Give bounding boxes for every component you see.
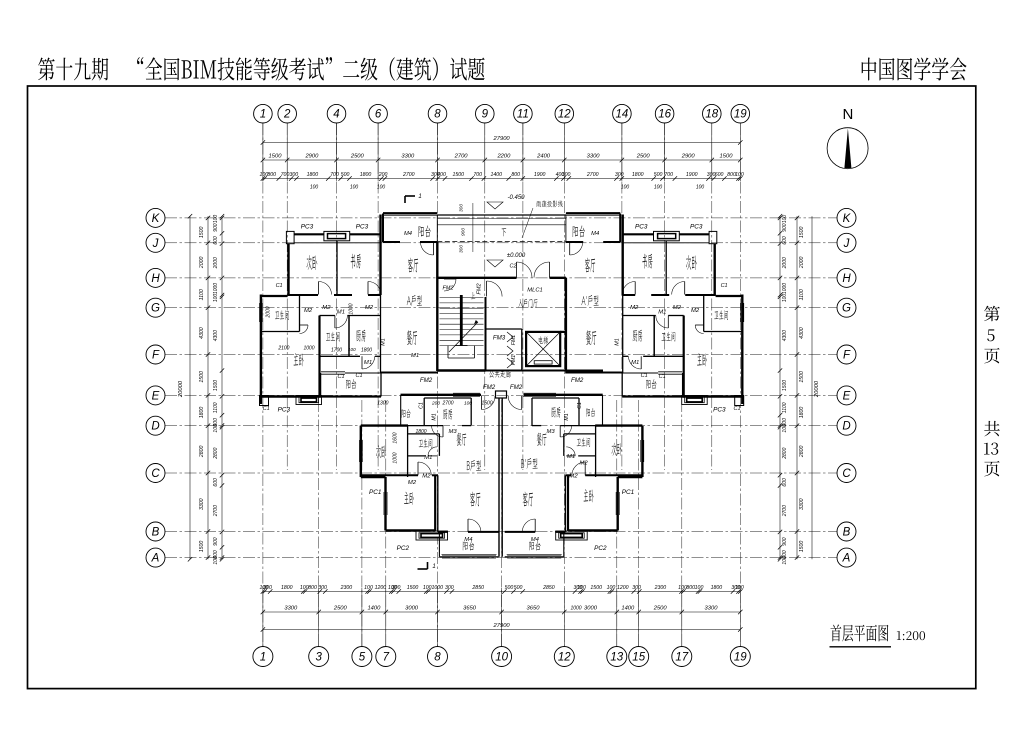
svg-text:2800: 2800 <box>213 447 219 459</box>
svg-text:M2: M2 <box>691 308 700 314</box>
svg-text:1800: 1800 <box>799 407 805 419</box>
svg-text:1400: 1400 <box>367 606 381 612</box>
svg-text:FM2: FM2 <box>483 384 496 391</box>
svg-text:800: 800 <box>308 585 317 591</box>
svg-text:C1: C1 <box>659 374 666 380</box>
svg-text:M2: M2 <box>422 474 431 480</box>
svg-text:500: 500 <box>654 172 663 178</box>
svg-text:PC1: PC1 <box>369 489 382 496</box>
svg-text:M1: M1 <box>658 310 666 316</box>
svg-text:300: 300 <box>289 172 298 178</box>
svg-text:100: 100 <box>607 585 616 591</box>
svg-text:300: 300 <box>445 585 454 591</box>
svg-text:J: J <box>843 238 850 250</box>
svg-text:1500: 1500 <box>720 154 734 160</box>
svg-text:PC3: PC3 <box>301 224 314 231</box>
svg-text:3000: 3000 <box>405 606 419 612</box>
svg-text:11: 11 <box>517 109 529 121</box>
svg-text:PC3: PC3 <box>356 224 369 231</box>
svg-text:FM1: FM1 <box>511 355 517 365</box>
svg-text:1900: 1900 <box>534 172 546 178</box>
svg-text:900: 900 <box>782 223 788 232</box>
svg-text:100: 100 <box>350 185 359 191</box>
svg-text:100: 100 <box>213 294 219 303</box>
svg-text:1200: 1200 <box>375 585 387 591</box>
svg-text:1000: 1000 <box>349 303 355 314</box>
svg-text:K: K <box>843 213 852 225</box>
svg-text:1100: 1100 <box>213 402 219 413</box>
svg-text:M2: M2 <box>673 305 682 311</box>
svg-text:C: C <box>842 468 851 480</box>
svg-text:200: 200 <box>431 401 440 407</box>
svg-text:100: 100 <box>654 185 663 191</box>
svg-text:800: 800 <box>511 172 520 178</box>
svg-text:2500: 2500 <box>653 606 668 612</box>
svg-text:5: 5 <box>359 652 366 664</box>
svg-text:M2: M2 <box>408 480 417 486</box>
svg-text:300: 300 <box>459 245 465 253</box>
svg-text:2200: 2200 <box>496 154 511 160</box>
svg-text:3300: 3300 <box>799 498 805 510</box>
svg-text:2800: 2800 <box>799 446 805 459</box>
svg-text:M1: M1 <box>567 454 575 460</box>
svg-text:100: 100 <box>782 424 788 433</box>
svg-text:13: 13 <box>610 652 623 664</box>
svg-text:1800: 1800 <box>361 348 372 354</box>
svg-text:±0.000: ±0.000 <box>507 253 526 259</box>
svg-text:G: G <box>151 303 160 315</box>
svg-text:FM2: FM2 <box>443 286 454 292</box>
svg-text:1600: 1600 <box>393 432 399 443</box>
svg-text:2000: 2000 <box>266 306 272 318</box>
svg-text:M4: M4 <box>531 537 540 543</box>
svg-text:1200: 1200 <box>617 585 629 591</box>
svg-text:2700: 2700 <box>213 505 219 517</box>
svg-text:9: 9 <box>482 109 489 121</box>
svg-text:1000: 1000 <box>213 283 219 294</box>
svg-text:2700: 2700 <box>402 172 415 178</box>
svg-text:FM2: FM2 <box>571 377 584 384</box>
svg-text:2850: 2850 <box>471 585 484 591</box>
svg-text:1500: 1500 <box>799 541 805 553</box>
svg-text:1: 1 <box>432 564 435 570</box>
svg-text:1000: 1000 <box>782 283 788 294</box>
svg-text:1500: 1500 <box>199 541 205 553</box>
svg-text:M1: M1 <box>564 413 570 420</box>
svg-text:C1: C1 <box>355 373 362 379</box>
svg-text:700: 700 <box>664 172 673 178</box>
svg-text:M2: M2 <box>304 308 313 314</box>
svg-text:M2: M2 <box>630 305 639 311</box>
svg-text:C1: C1 <box>337 374 344 380</box>
svg-text:PC3: PC3 <box>635 224 648 231</box>
svg-text:600: 600 <box>213 236 219 245</box>
svg-text:1100: 1100 <box>782 402 788 413</box>
svg-text:2700: 2700 <box>454 154 469 160</box>
svg-text:1000: 1000 <box>393 452 399 463</box>
svg-text:MLC1: MLC1 <box>527 288 542 294</box>
svg-text:3000: 3000 <box>584 606 598 612</box>
svg-text:2500: 2500 <box>350 154 365 160</box>
svg-text:12: 12 <box>558 652 571 664</box>
svg-text:7: 7 <box>383 652 390 664</box>
svg-text:1500: 1500 <box>199 371 205 383</box>
svg-text:600: 600 <box>213 478 219 487</box>
svg-text:M1: M1 <box>411 353 419 359</box>
svg-text:100: 100 <box>696 185 705 191</box>
svg-text:FM2: FM2 <box>510 384 523 391</box>
svg-text:700: 700 <box>330 172 339 178</box>
svg-text:900: 900 <box>213 537 219 546</box>
svg-text:PC2: PC2 <box>397 545 410 552</box>
svg-text:300: 300 <box>562 172 571 178</box>
svg-text:1500: 1500 <box>199 227 205 239</box>
svg-text:2300: 2300 <box>340 585 353 591</box>
svg-text:2100: 2100 <box>277 346 289 352</box>
svg-text:100: 100 <box>364 585 373 591</box>
svg-text:H: H <box>151 273 160 285</box>
svg-text:2850: 2850 <box>542 585 555 591</box>
svg-text:M2: M2 <box>580 461 589 467</box>
svg-text:2000: 2000 <box>799 257 805 270</box>
svg-text:10: 10 <box>495 652 508 664</box>
svg-text:M4: M4 <box>591 231 599 237</box>
svg-text:M4: M4 <box>464 537 473 543</box>
svg-text:C1: C1 <box>276 283 283 289</box>
svg-text:300: 300 <box>632 585 641 591</box>
svg-text:1: 1 <box>418 194 421 200</box>
svg-text:C1: C1 <box>263 406 270 412</box>
svg-text:100: 100 <box>735 172 744 178</box>
svg-text:100: 100 <box>213 215 219 224</box>
svg-text:3300: 3300 <box>401 154 415 160</box>
svg-text:1700: 1700 <box>331 348 342 354</box>
svg-text:PC3: PC3 <box>713 407 726 414</box>
svg-text:3300: 3300 <box>284 606 298 612</box>
svg-text:2900: 2900 <box>304 154 319 160</box>
svg-text:900: 900 <box>213 223 219 232</box>
svg-text:3: 3 <box>315 652 322 664</box>
svg-text:800: 800 <box>267 172 276 178</box>
svg-text:H: H <box>842 273 851 285</box>
svg-text:100: 100 <box>695 585 704 591</box>
svg-text:C1: C1 <box>577 402 583 409</box>
svg-text:700: 700 <box>473 172 482 178</box>
svg-text:100: 100 <box>621 185 630 191</box>
svg-text:E: E <box>152 390 160 402</box>
svg-text:M1: M1 <box>615 338 621 346</box>
svg-text:FM2: FM2 <box>420 377 433 384</box>
svg-text:4: 4 <box>333 109 339 121</box>
svg-text:M1: M1 <box>337 310 345 316</box>
svg-text:20000: 20000 <box>178 380 184 398</box>
svg-text:1900: 1900 <box>686 172 698 178</box>
svg-text:1800: 1800 <box>307 172 319 178</box>
svg-text:C1: C1 <box>641 373 648 379</box>
svg-text:M1: M1 <box>381 338 387 346</box>
svg-text:100: 100 <box>735 585 744 591</box>
svg-text:1800: 1800 <box>199 407 205 419</box>
svg-text:1500: 1500 <box>269 154 283 160</box>
svg-text:700: 700 <box>281 172 290 178</box>
svg-text:FM2: FM2 <box>476 284 482 295</box>
svg-text:2300: 2300 <box>654 585 667 591</box>
svg-text:C1: C1 <box>733 406 740 412</box>
svg-text:27900: 27900 <box>493 136 511 142</box>
svg-text:100: 100 <box>213 424 219 433</box>
svg-text:M2: M2 <box>322 305 331 311</box>
svg-text:2700: 2700 <box>586 172 599 178</box>
svg-text:-0.450: -0.450 <box>507 195 525 201</box>
svg-text:100: 100 <box>782 556 788 565</box>
svg-text:M2: M2 <box>365 305 374 311</box>
svg-text:2700: 2700 <box>441 401 453 407</box>
svg-text:D: D <box>151 421 159 433</box>
svg-text:PC3: PC3 <box>690 224 703 231</box>
svg-text:100: 100 <box>377 185 386 191</box>
svg-text:D: D <box>842 421 850 433</box>
svg-text:900: 900 <box>782 537 788 546</box>
svg-text:1500: 1500 <box>590 585 602 591</box>
svg-text:19: 19 <box>734 109 747 121</box>
svg-text:100: 100 <box>782 294 788 303</box>
svg-text:8: 8 <box>434 109 441 121</box>
svg-text:1000: 1000 <box>570 606 581 612</box>
svg-text:900: 900 <box>461 228 467 236</box>
svg-text:600: 600 <box>782 478 788 487</box>
svg-text:PC2: PC2 <box>594 545 607 552</box>
svg-text:500: 500 <box>505 585 514 591</box>
svg-text:B: B <box>152 527 160 539</box>
svg-text:3300: 3300 <box>705 606 719 612</box>
svg-text:1500: 1500 <box>407 585 419 591</box>
svg-text:1300: 1300 <box>377 401 388 407</box>
svg-text:K: K <box>152 213 161 225</box>
svg-text:M3: M3 <box>547 429 556 435</box>
svg-text:16: 16 <box>658 109 671 121</box>
svg-text:300: 300 <box>615 172 624 178</box>
svg-text:2700: 2700 <box>782 505 788 517</box>
svg-text:F: F <box>843 350 851 362</box>
svg-text:1100: 1100 <box>199 289 205 300</box>
svg-text:FM3: FM3 <box>493 335 506 342</box>
svg-text:B: B <box>843 527 851 539</box>
svg-text:C1: C1 <box>721 283 728 289</box>
svg-text:2800: 2800 <box>782 447 788 459</box>
svg-text:8: 8 <box>434 652 441 664</box>
svg-text:14: 14 <box>616 109 629 121</box>
svg-text:2800: 2800 <box>199 446 205 459</box>
svg-text:500: 500 <box>341 172 350 178</box>
svg-text:100: 100 <box>310 185 319 191</box>
svg-text:100: 100 <box>782 215 788 224</box>
svg-text:1800: 1800 <box>632 172 644 178</box>
svg-text:15: 15 <box>632 652 645 664</box>
svg-text:600: 600 <box>782 236 788 245</box>
svg-text:C2: C2 <box>509 264 516 270</box>
svg-text:A: A <box>842 553 851 565</box>
svg-text:PC1: PC1 <box>622 489 635 496</box>
svg-text:2000: 2000 <box>213 257 219 269</box>
svg-text:2000: 2000 <box>199 257 205 270</box>
svg-text:4300: 4300 <box>213 330 219 341</box>
svg-text:2900: 2900 <box>681 154 696 160</box>
svg-text:1800: 1800 <box>360 172 372 178</box>
svg-text:J: J <box>152 238 159 250</box>
svg-text:A: A <box>151 553 160 565</box>
svg-text:300: 300 <box>392 585 401 591</box>
svg-text:PC3: PC3 <box>278 407 291 414</box>
svg-text:1500: 1500 <box>453 172 465 178</box>
svg-text:100: 100 <box>577 585 586 591</box>
svg-text:C: C <box>151 468 160 480</box>
svg-text:E: E <box>843 390 851 402</box>
svg-text:600: 600 <box>715 172 724 178</box>
svg-text:1400: 1400 <box>621 606 635 612</box>
svg-text:2500: 2500 <box>333 606 348 612</box>
svg-text:1800: 1800 <box>711 585 723 591</box>
svg-text:1000: 1000 <box>303 346 314 352</box>
svg-text:19: 19 <box>734 652 747 664</box>
svg-text:3650: 3650 <box>463 606 477 612</box>
svg-text:2400: 2400 <box>536 154 551 160</box>
svg-text:4300: 4300 <box>782 330 788 341</box>
svg-text:2500: 2500 <box>636 154 651 160</box>
svg-text:300: 300 <box>459 204 465 212</box>
svg-text:N: N <box>842 106 853 123</box>
svg-text:100: 100 <box>213 556 219 565</box>
svg-text:18: 18 <box>705 109 718 121</box>
svg-text:3300: 3300 <box>199 498 205 510</box>
svg-text:2000: 2000 <box>782 257 788 269</box>
svg-text:6: 6 <box>375 109 382 121</box>
svg-text:17: 17 <box>675 652 688 664</box>
svg-text:3650: 3650 <box>527 606 541 612</box>
svg-text:1500: 1500 <box>799 227 805 239</box>
svg-text:1500: 1500 <box>782 380 788 391</box>
svg-text:100: 100 <box>423 585 432 591</box>
svg-text:1400: 1400 <box>491 172 503 178</box>
svg-text:4300: 4300 <box>199 327 205 339</box>
svg-text:2: 2 <box>283 109 291 121</box>
svg-text:1: 1 <box>260 652 266 664</box>
svg-text:M1: M1 <box>432 413 438 420</box>
svg-text:M3: M3 <box>449 429 458 435</box>
svg-text:1500: 1500 <box>213 380 219 391</box>
svg-text:1800: 1800 <box>281 585 293 591</box>
svg-text:M4: M4 <box>404 231 412 237</box>
svg-text:1100: 1100 <box>799 289 805 300</box>
svg-text:300: 300 <box>318 585 327 591</box>
svg-text:1500: 1500 <box>799 371 805 383</box>
svg-text:12: 12 <box>558 109 571 121</box>
svg-text:400: 400 <box>437 172 446 178</box>
svg-text:3300: 3300 <box>587 154 601 160</box>
svg-text:500: 500 <box>514 585 523 591</box>
svg-text:300: 300 <box>263 585 272 591</box>
svg-text:G: G <box>842 303 851 315</box>
svg-text:F: F <box>152 350 160 362</box>
svg-text:20000: 20000 <box>814 380 820 398</box>
svg-text:1: 1 <box>260 109 266 121</box>
svg-text:4300: 4300 <box>799 327 805 339</box>
